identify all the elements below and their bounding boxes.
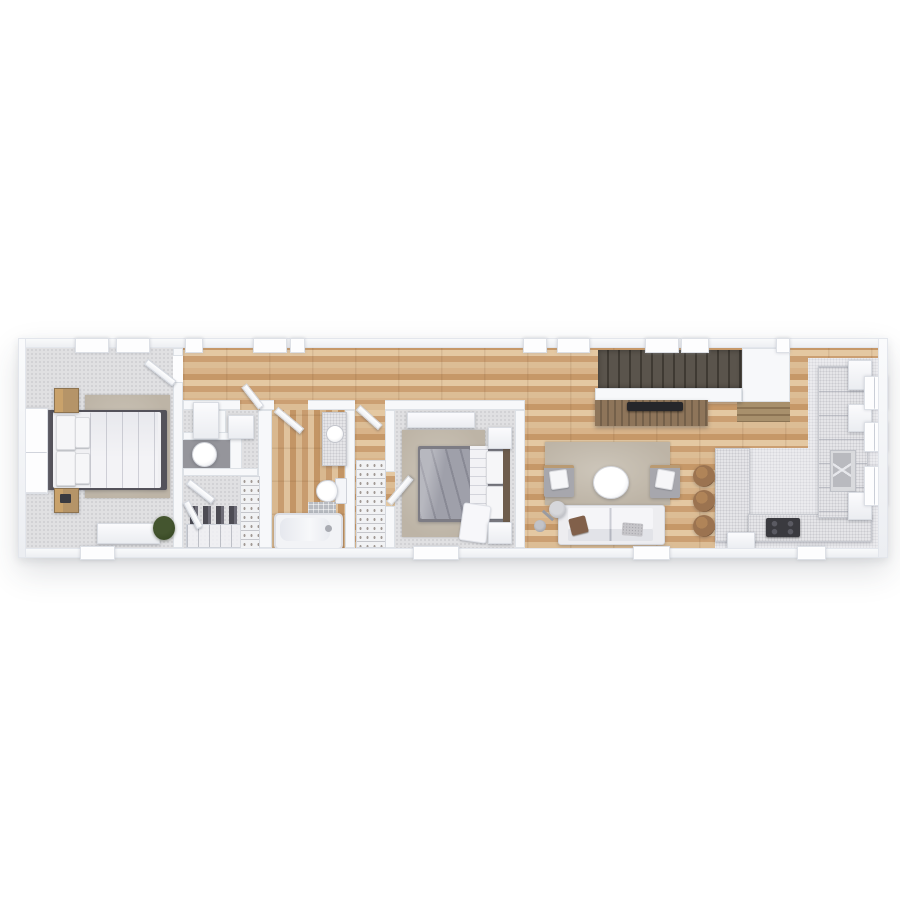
- bar-stool: [693, 515, 715, 537]
- closet-shelf-column: [240, 476, 260, 550]
- closet-top-wall: [183, 468, 258, 476]
- top-window: [645, 338, 679, 353]
- top-window: [776, 338, 790, 353]
- bedroom2-nightstand-top: [488, 427, 512, 449]
- floorplan-canvas: [0, 0, 900, 900]
- bed1-pillow: [56, 415, 76, 450]
- bottom-window: [413, 546, 459, 560]
- bed1-pillow: [75, 417, 90, 448]
- tv: [627, 402, 683, 411]
- alcove-round-table: [192, 442, 217, 467]
- sofa-pillow-gray: [622, 522, 644, 536]
- top-window: [185, 338, 203, 353]
- bedroom1-right-wall: [173, 382, 183, 548]
- top-window: [116, 338, 150, 353]
- staircase-lower-steps: [737, 402, 790, 422]
- bedroom1-right-wall-top: [173, 348, 183, 356]
- bed2-white-throw: [458, 502, 491, 544]
- outer-wall-right: [878, 338, 888, 558]
- bed2-headboard: [503, 444, 510, 524]
- top-window: [253, 338, 287, 353]
- bedroom2-left-wall-bottom: [385, 506, 395, 548]
- bed2-pillow: [486, 451, 504, 484]
- top-window: [557, 338, 590, 353]
- floor-lamp-shade: [549, 501, 566, 518]
- closet-bathroom-wall: [258, 410, 272, 548]
- bathtub-basin: [280, 518, 330, 541]
- staircase-upper-flight: [598, 350, 742, 388]
- floor-plan: [18, 338, 888, 558]
- vanity-sink: [326, 425, 344, 443]
- top-window: [75, 338, 109, 353]
- potted-plant: [153, 516, 175, 540]
- stair-landing-wall: [742, 348, 790, 402]
- tub-faucet: [325, 525, 332, 532]
- cooktop: [766, 518, 800, 537]
- bottom-window: [80, 546, 115, 560]
- top-window: [681, 338, 709, 353]
- coffee-table: [593, 466, 629, 499]
- top-window: [523, 338, 547, 353]
- kitchen-sink-basin: [833, 453, 851, 487]
- bedroom2-dresser: [407, 412, 475, 428]
- bedroom2-nightstand-bottom: [488, 522, 512, 544]
- bed1-duvet: [90, 412, 158, 488]
- nook-cabinet-right: [228, 415, 254, 439]
- nook-cabinet-left: [193, 402, 219, 439]
- nightstand-book: [60, 494, 71, 503]
- outer-wall-left: [18, 338, 26, 558]
- floor-lamp-base: [534, 520, 546, 532]
- bedroom2-right-wall: [515, 410, 525, 548]
- bed1-pillow: [75, 453, 90, 484]
- toilet-bowl: [316, 480, 338, 502]
- bottom-window: [633, 546, 670, 560]
- kitchen-peninsula: [715, 448, 750, 542]
- bed1-pillow: [56, 451, 76, 486]
- bar-stool: [693, 490, 715, 512]
- bottom-window: [797, 546, 826, 560]
- top-window: [290, 338, 305, 353]
- bedroom1-nightstand-top: [54, 388, 79, 413]
- armchair-right-pillow: [654, 469, 675, 491]
- rooms-top-wall: [183, 400, 525, 410]
- linen-shelf-unit: [356, 460, 386, 548]
- armchair-left-pillow: [549, 469, 569, 490]
- bar-stool: [693, 465, 715, 487]
- bedroom2-left-wall-top: [385, 410, 395, 472]
- bedroom1-dresser: [97, 523, 160, 544]
